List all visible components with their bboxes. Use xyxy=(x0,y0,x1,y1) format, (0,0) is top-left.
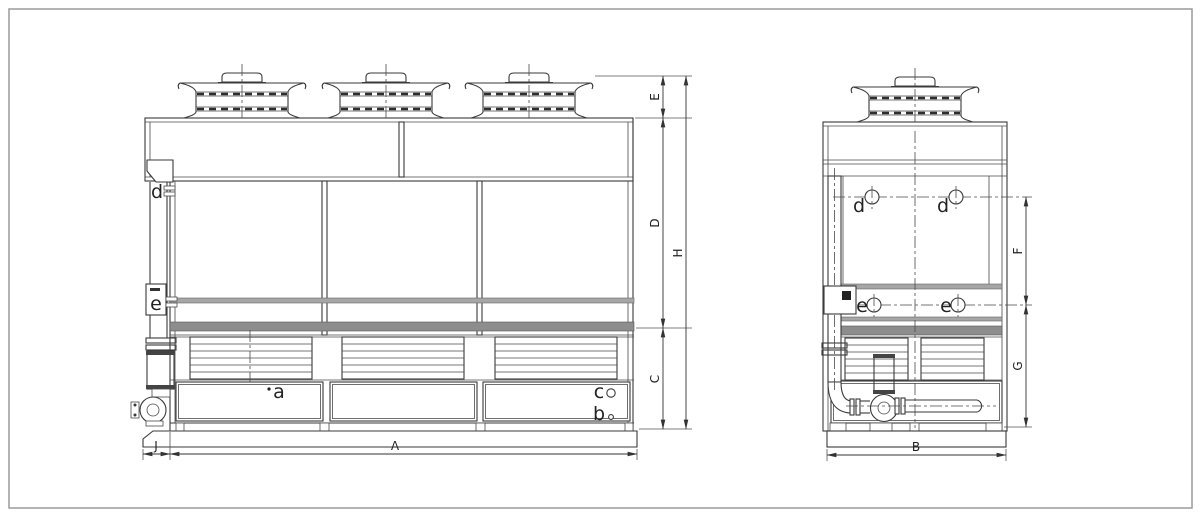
part-label-c: c xyxy=(594,381,604,403)
side-casing xyxy=(823,122,1007,447)
coil-section xyxy=(170,181,634,335)
drain-c-marker xyxy=(607,389,615,397)
part-label-e: e xyxy=(940,295,952,317)
dim-label-A: A xyxy=(391,439,400,453)
part-label-e: e xyxy=(150,293,162,315)
point-a-marker xyxy=(267,387,270,390)
connection-d-stub xyxy=(164,186,175,190)
dim-label-G: G xyxy=(1011,361,1025,370)
dim-label-C: C xyxy=(648,375,662,383)
part-label-b: b xyxy=(593,403,605,425)
dim-label-D: D xyxy=(648,218,662,227)
dim-label-B: B xyxy=(912,440,920,454)
pipe-flange xyxy=(146,338,176,343)
pump-volute xyxy=(871,395,898,422)
part-label-a: a xyxy=(273,381,285,403)
part-label-e: e xyxy=(856,295,868,317)
part-label-d: d xyxy=(937,195,949,217)
pump-volute xyxy=(140,397,166,423)
dim-label-J: J xyxy=(153,439,158,453)
front-view: d e a c b E D C H xyxy=(131,64,692,460)
part-label-d: d xyxy=(853,195,865,217)
side-view: d d e e F G B xyxy=(822,68,1032,461)
part-label-d: d xyxy=(151,181,163,203)
access-box xyxy=(824,286,856,314)
fan-deck-casing xyxy=(145,118,633,181)
water-basin xyxy=(170,382,634,431)
side-vertical-dimensions: F G xyxy=(1004,197,1032,427)
connection-e-stub xyxy=(166,297,177,301)
dim-label-H: H xyxy=(671,248,685,257)
drawing-canvas: d e a c b E D C H xyxy=(0,0,1200,520)
dim-label-F: F xyxy=(1011,247,1025,254)
dim-label-E: E xyxy=(648,93,662,101)
drain-b-marker xyxy=(609,415,614,420)
cooling-tower-drawing: d e a c b E D C H xyxy=(0,0,1200,520)
